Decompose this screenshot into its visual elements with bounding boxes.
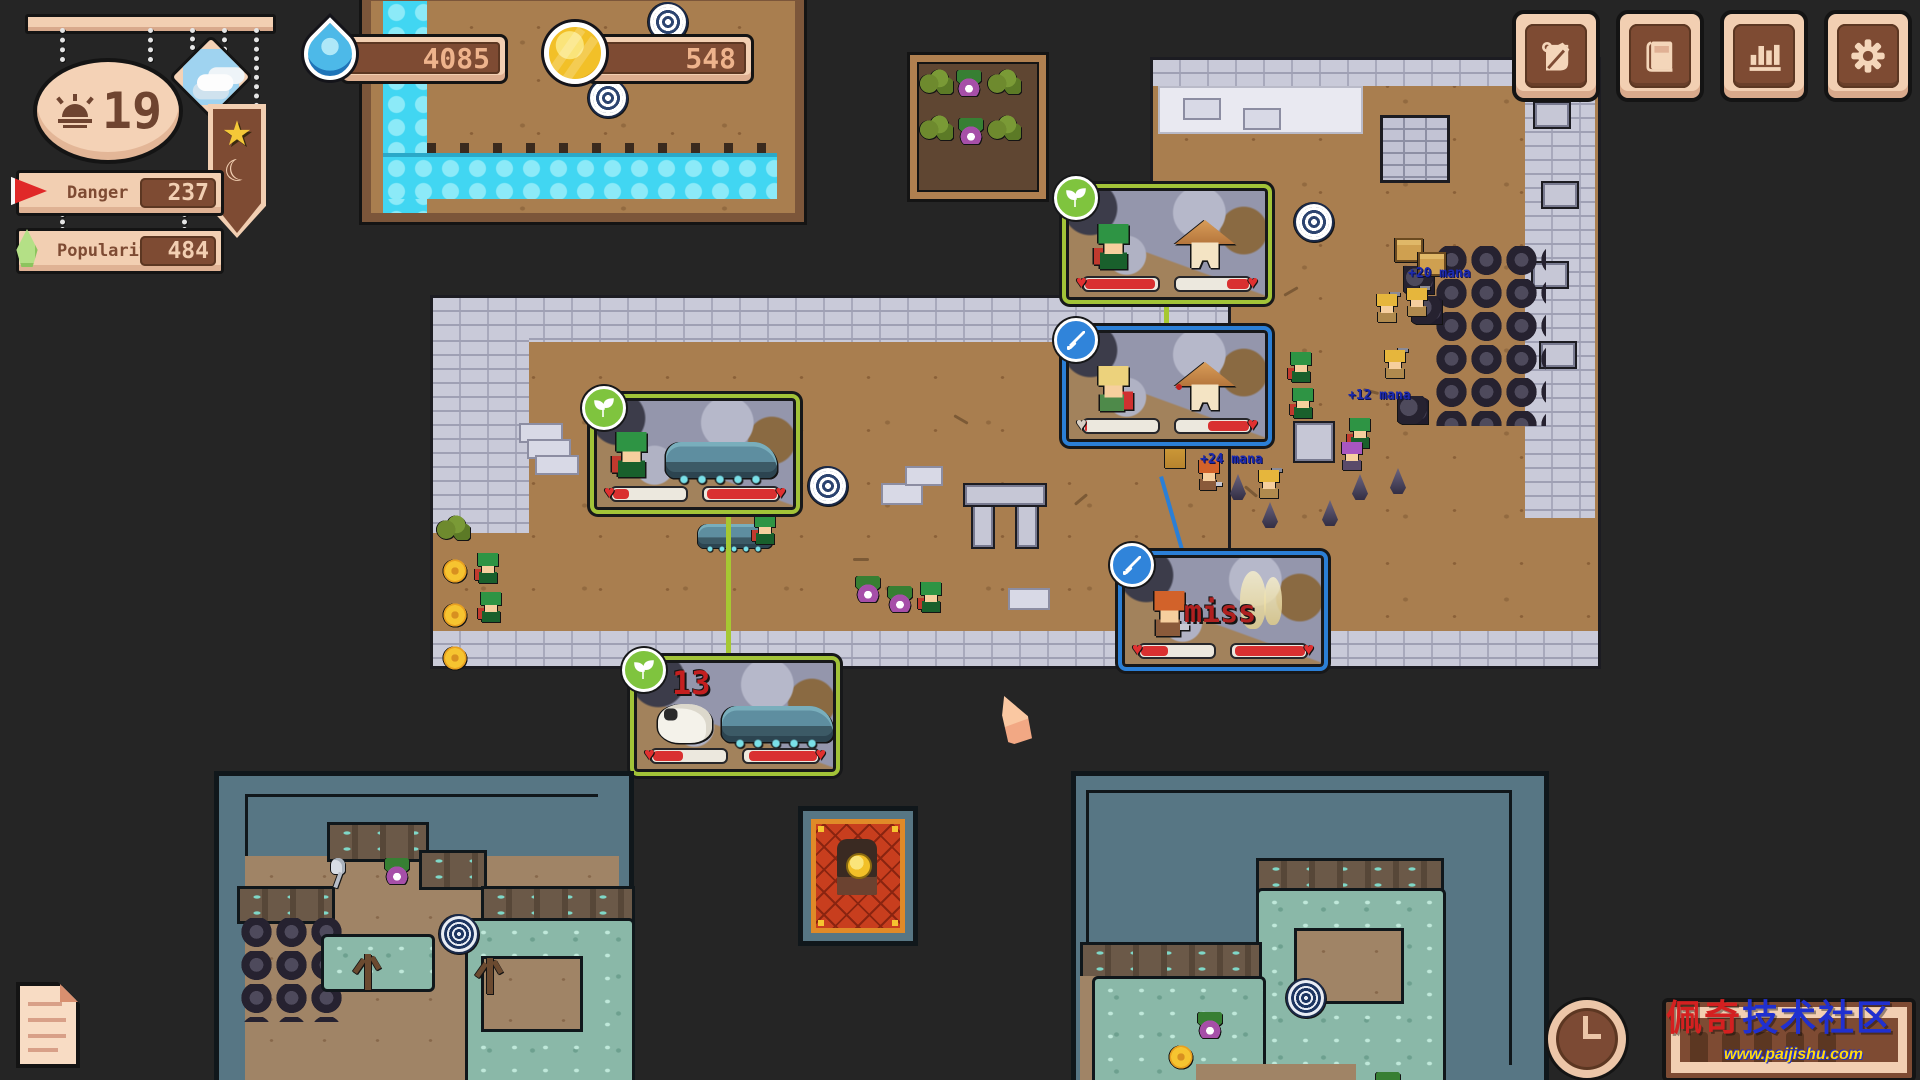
sunrise-icon — [54, 94, 96, 128]
floating-mana-text: +24 mana — [1200, 452, 1263, 467]
portal-icon[interactable] — [590, 80, 626, 116]
stats-button[interactable] — [1720, 10, 1808, 102]
villager-unit[interactable] — [1288, 352, 1314, 382]
dandelion[interactable] — [440, 556, 470, 586]
health-bar: ♥ — [742, 748, 820, 764]
blood-splash — [1174, 382, 1184, 392]
shovel-tool-icon[interactable] — [331, 858, 345, 888]
time-button[interactable] — [1548, 1000, 1626, 1078]
cave-floor — [1196, 1064, 1356, 1080]
health-bar: ♥ — [1174, 418, 1252, 434]
heart-icon: ♥ — [815, 745, 826, 763]
water-value: 4085 — [348, 42, 500, 74]
villager-unit[interactable] — [918, 582, 944, 612]
battle-popup[interactable]: 13 ♥ ♥ — [630, 656, 840, 776]
heart-icon: ♥ — [775, 483, 786, 501]
danger-label: Danger — [67, 183, 128, 203]
heart-icon: ♥ — [644, 745, 655, 763]
dandelion[interactable] — [440, 600, 470, 630]
danger-flag-icon — [11, 175, 47, 207]
battle-popup[interactable]: miss ♥ ♥ — [1118, 551, 1328, 671]
gold-coin-icon — [544, 22, 606, 84]
miner-unit[interactable] — [1374, 292, 1400, 322]
chain — [254, 28, 259, 108]
nature-badge-icon — [622, 648, 666, 692]
nature-badge-icon — [1054, 176, 1098, 220]
water-band — [383, 153, 777, 199]
stonehenge-lintel — [965, 485, 1045, 505]
gear-icon — [1848, 36, 1888, 76]
portal-icon[interactable] — [441, 916, 477, 952]
chain — [60, 28, 65, 62]
treasure-chest — [837, 839, 877, 895]
mage-unit[interactable] — [1340, 442, 1364, 470]
cloudy-sky-icon — [183, 49, 239, 105]
gold-value: 548 — [594, 42, 746, 74]
mouse-cursor — [998, 696, 1032, 744]
health-bar: ♥ — [650, 748, 728, 764]
popularity-sprout-icon — [13, 229, 41, 267]
turnip-creature[interactable] — [888, 586, 912, 612]
health-bar: ♥ — [1230, 643, 1308, 659]
star-icon: ★ — [222, 117, 252, 151]
portal-icon[interactable] — [1288, 980, 1324, 1016]
coin-icon — [846, 853, 872, 879]
miner-unit[interactable] — [1404, 286, 1430, 316]
villager-unit[interactable] — [475, 553, 501, 583]
danger-value: 237 — [140, 178, 216, 208]
dock-posts — [427, 143, 777, 153]
portal-icon[interactable] — [810, 468, 846, 504]
brick-wall — [1380, 115, 1450, 183]
heart-icon: ♥ — [1247, 415, 1258, 433]
danger-meter[interactable]: Danger 237 — [16, 170, 224, 216]
chain — [148, 28, 153, 62]
garden-plot[interactable] — [910, 55, 1046, 199]
target-line — [726, 506, 731, 658]
villager-unit[interactable] — [478, 592, 504, 622]
bar-chart-icon — [1744, 36, 1784, 76]
day-counter[interactable]: 19 — [33, 58, 183, 164]
farm-plot — [419, 850, 487, 890]
notes-button[interactable] — [16, 982, 80, 1068]
miner-unit[interactable] — [1382, 348, 1408, 378]
portal-icon[interactable] — [1296, 204, 1332, 240]
floating-mana-text: +12 mana — [1348, 388, 1411, 403]
map-cave-left — [214, 771, 634, 1080]
merchant-carpet[interactable] — [798, 806, 918, 946]
floating-mana-text: +20 mana — [1408, 266, 1471, 281]
scroll-quill-icon — [1536, 36, 1576, 76]
chain — [190, 28, 195, 50]
day-number: 19 — [102, 86, 162, 136]
heart-icon: ♥ — [1303, 640, 1314, 658]
dead-tree — [487, 958, 493, 994]
health-bar: ♥ — [1174, 276, 1252, 292]
shrub — [436, 514, 470, 540]
turnip-creature[interactable] — [385, 858, 409, 884]
turnip-creature[interactable] — [1198, 1012, 1222, 1038]
heart-icon: ♥ — [1076, 273, 1087, 291]
battle-popup[interactable]: ♥ ♥ — [1062, 184, 1272, 304]
heart-icon: ♥ — [1076, 415, 1087, 433]
dandelion[interactable] — [1166, 1042, 1196, 1072]
spirit-flame — [1264, 577, 1282, 625]
settings-button[interactable] — [1824, 10, 1912, 102]
health-bar: ♥ — [1082, 418, 1160, 434]
health-bar: ♥ — [1082, 276, 1160, 292]
turnip-creature[interactable] — [856, 576, 880, 602]
map-cave-right — [1071, 771, 1549, 1080]
stone-platform — [433, 328, 529, 533]
miner-unit[interactable] — [1256, 468, 1282, 498]
sword-badge-icon — [1110, 543, 1154, 587]
dandelion[interactable] — [440, 643, 470, 673]
health-bar: ♥ — [610, 486, 688, 502]
gold-resource-bar[interactable]: 548 — [586, 34, 754, 84]
watermark-title: 佩奇技术社区 — [1666, 1000, 1916, 1036]
villager-unit[interactable] — [752, 514, 778, 544]
sword-badge-icon — [1054, 318, 1098, 362]
health-bar: ♥ — [1138, 643, 1216, 659]
health-bar: ♥ — [702, 486, 780, 502]
heart-icon: ♥ — [1247, 273, 1258, 291]
water-resource-bar[interactable]: 4085 — [340, 34, 508, 84]
popularity-meter[interactable]: Popularity 484 — [16, 228, 224, 274]
turnip-creature[interactable] — [1376, 1072, 1400, 1080]
battle-popup[interactable]: ♥ ♥ — [1062, 326, 1272, 446]
popularity-value: 484 — [140, 236, 216, 266]
damage-number: 13 — [672, 664, 711, 702]
dead-tree — [365, 954, 371, 990]
battle-popup[interactable]: ♥ ♥ — [590, 394, 800, 514]
villager-unit[interactable] — [1290, 388, 1316, 418]
miss-text: miss — [1184, 595, 1256, 630]
quests-button[interactable] — [1512, 10, 1600, 102]
moon-icon: ☾ — [220, 154, 254, 190]
nature-badge-icon — [582, 386, 626, 430]
journal-button[interactable] — [1616, 10, 1704, 102]
heart-icon: ♥ — [604, 483, 615, 501]
heart-icon: ♥ — [1132, 640, 1143, 658]
farm-plot — [327, 822, 429, 862]
game-screen: +20 mana +12 mana +24 mana ♥ ♥ ♥ ♥ — [0, 0, 1920, 1080]
book-icon — [1640, 36, 1680, 76]
watermark-url: www.paijishu.com — [1724, 1046, 1863, 1064]
turnip-creature — [959, 118, 983, 144]
